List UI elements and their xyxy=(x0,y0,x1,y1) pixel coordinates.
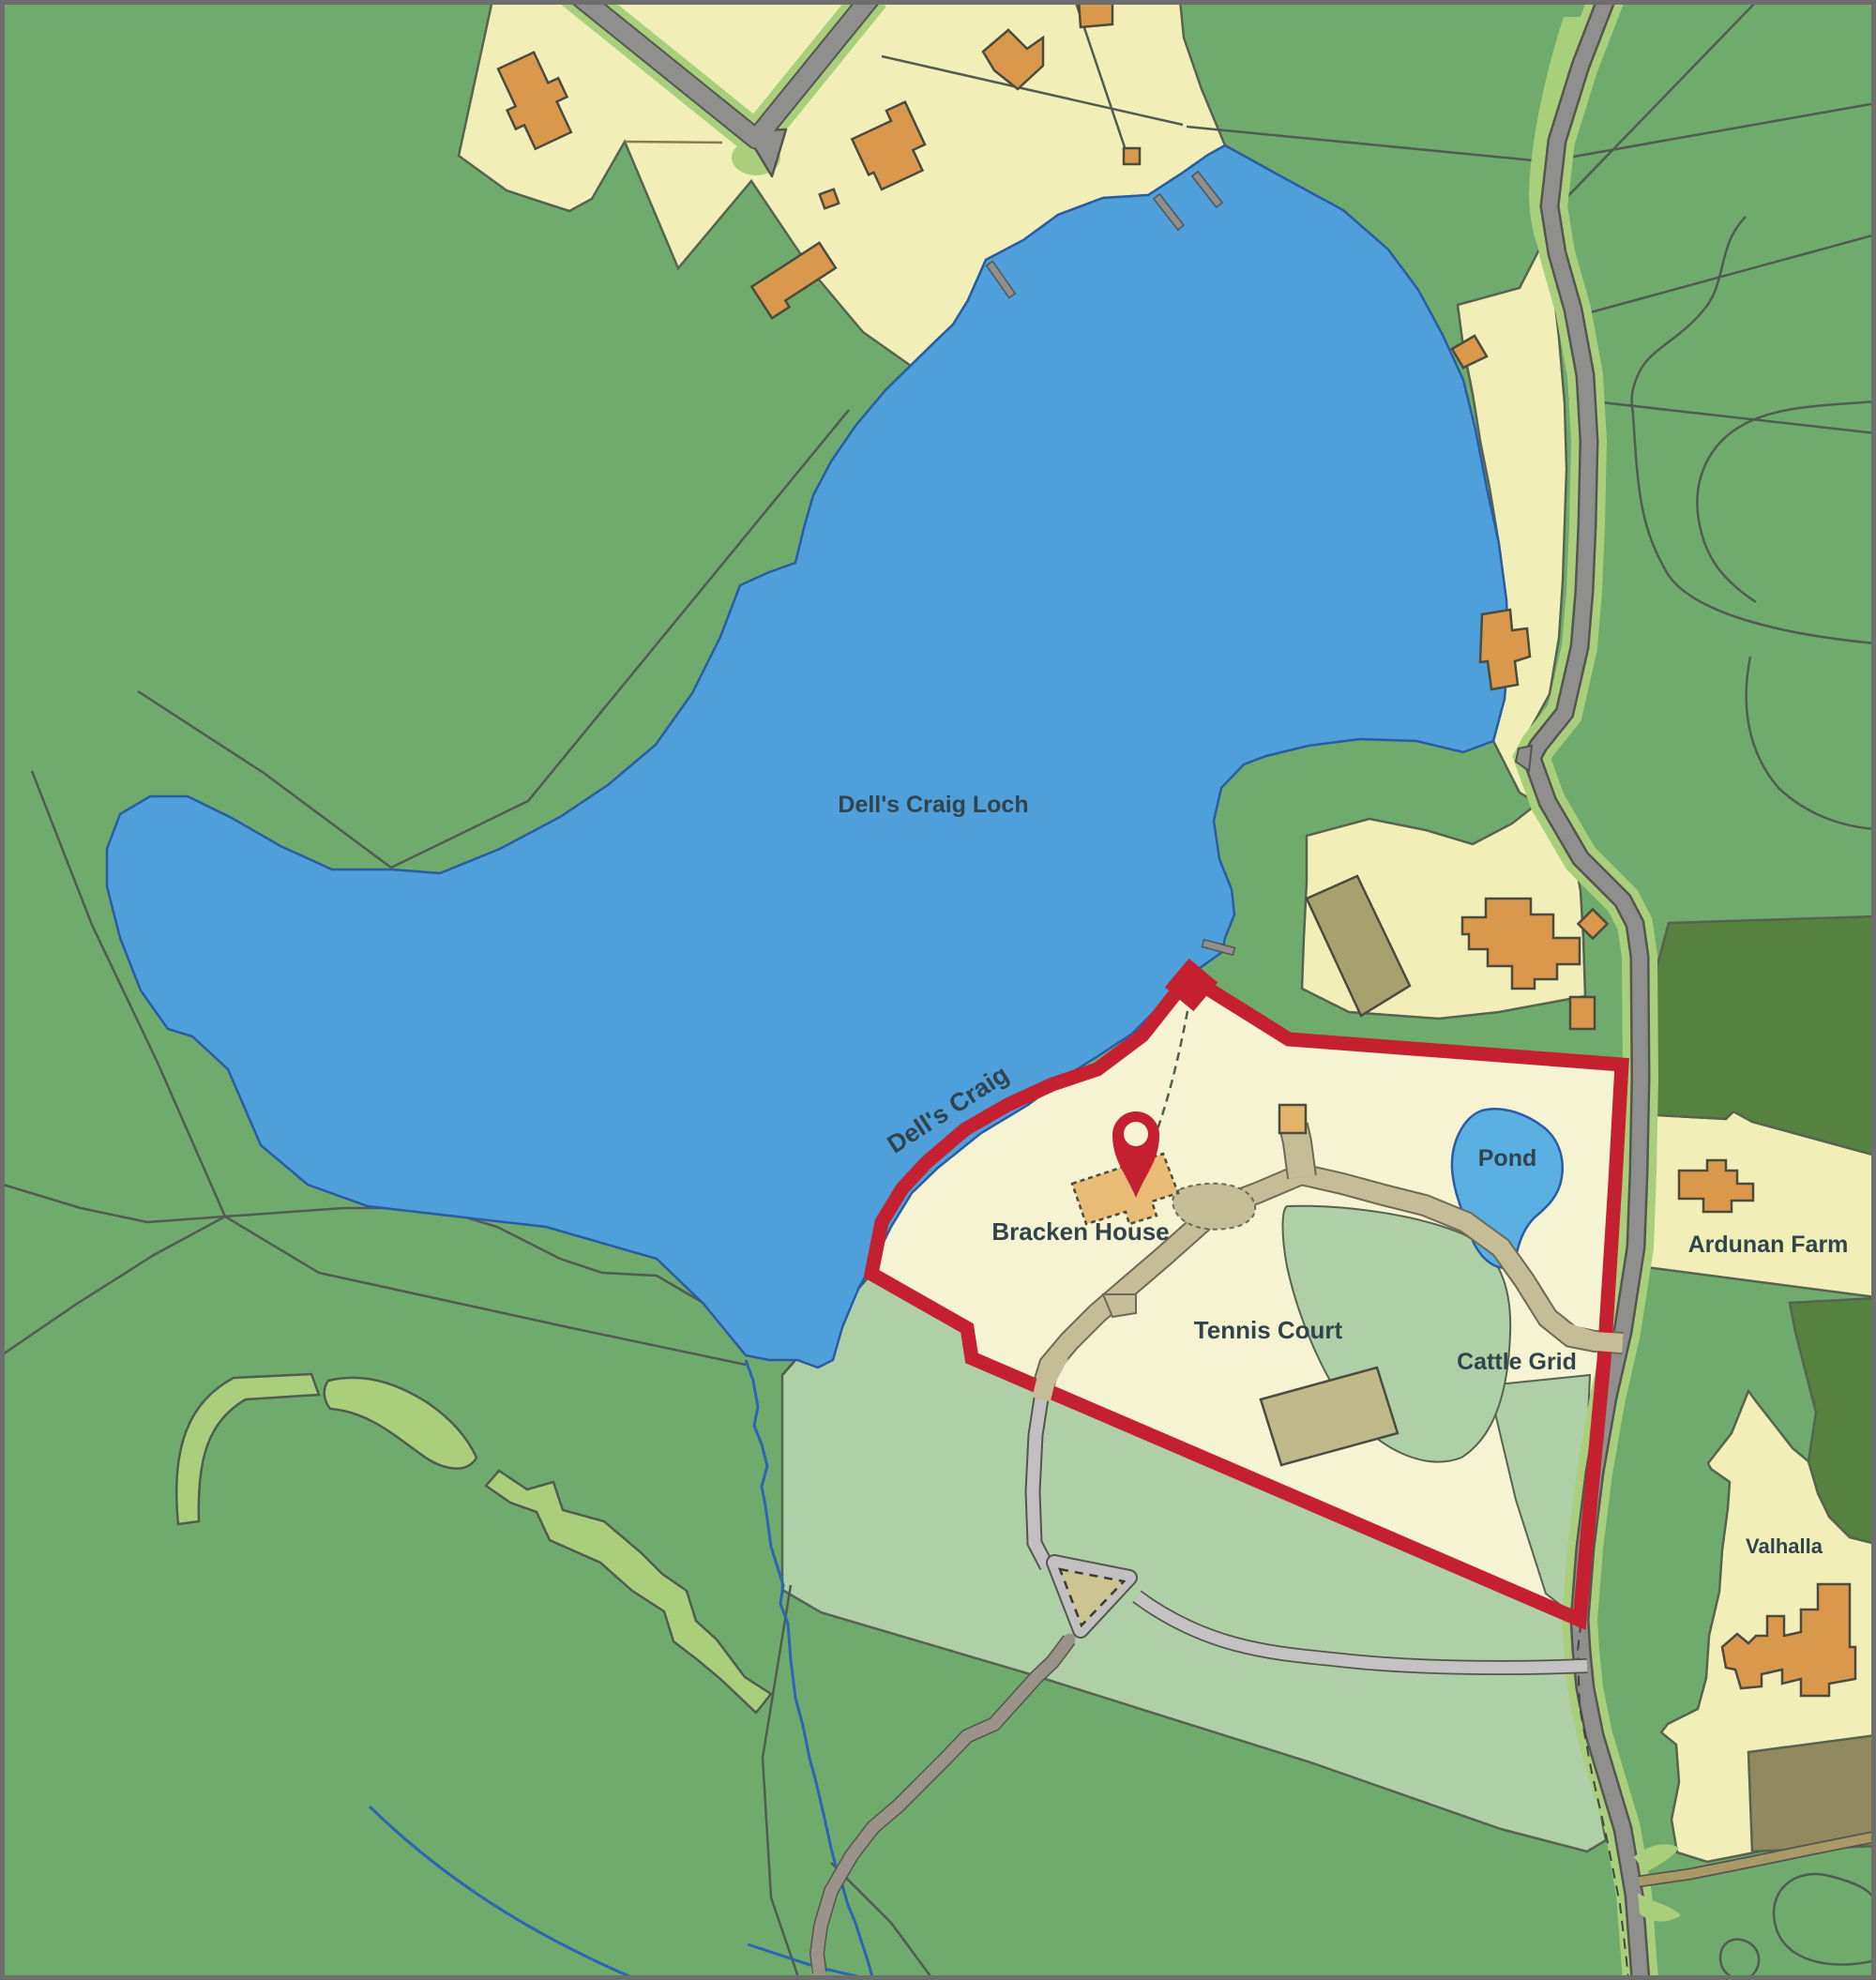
svg-text:Cattle Grid: Cattle Grid xyxy=(1457,1349,1577,1375)
svg-text:Valhalla: Valhalla xyxy=(1746,1534,1823,1558)
svg-text:Tennis Court: Tennis Court xyxy=(1194,1316,1343,1344)
svg-text:Bracken House: Bracken House xyxy=(991,1217,1169,1246)
svg-text:Ardunan Farm: Ardunan Farm xyxy=(1688,1232,1849,1258)
svg-text:Pond: Pond xyxy=(1478,1145,1537,1171)
svg-text:Dell's Craig Loch: Dell's Craig Loch xyxy=(838,792,1028,818)
